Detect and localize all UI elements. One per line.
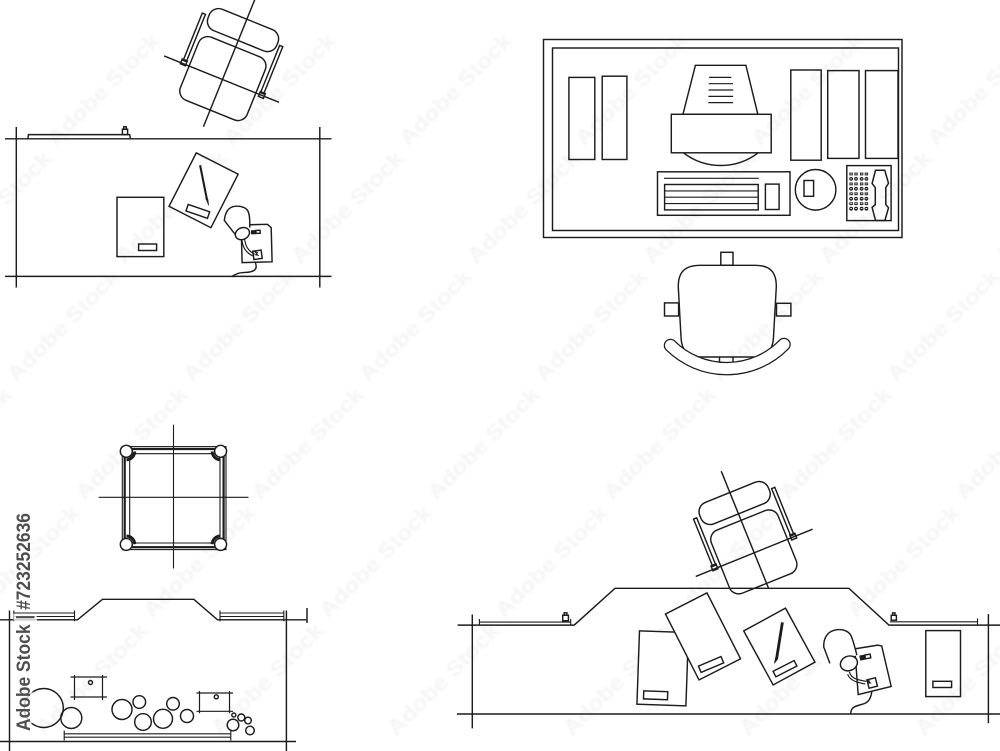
svg-text:Adobe Stock | #723252636: Adobe Stock | #723252636 [14, 513, 35, 731]
